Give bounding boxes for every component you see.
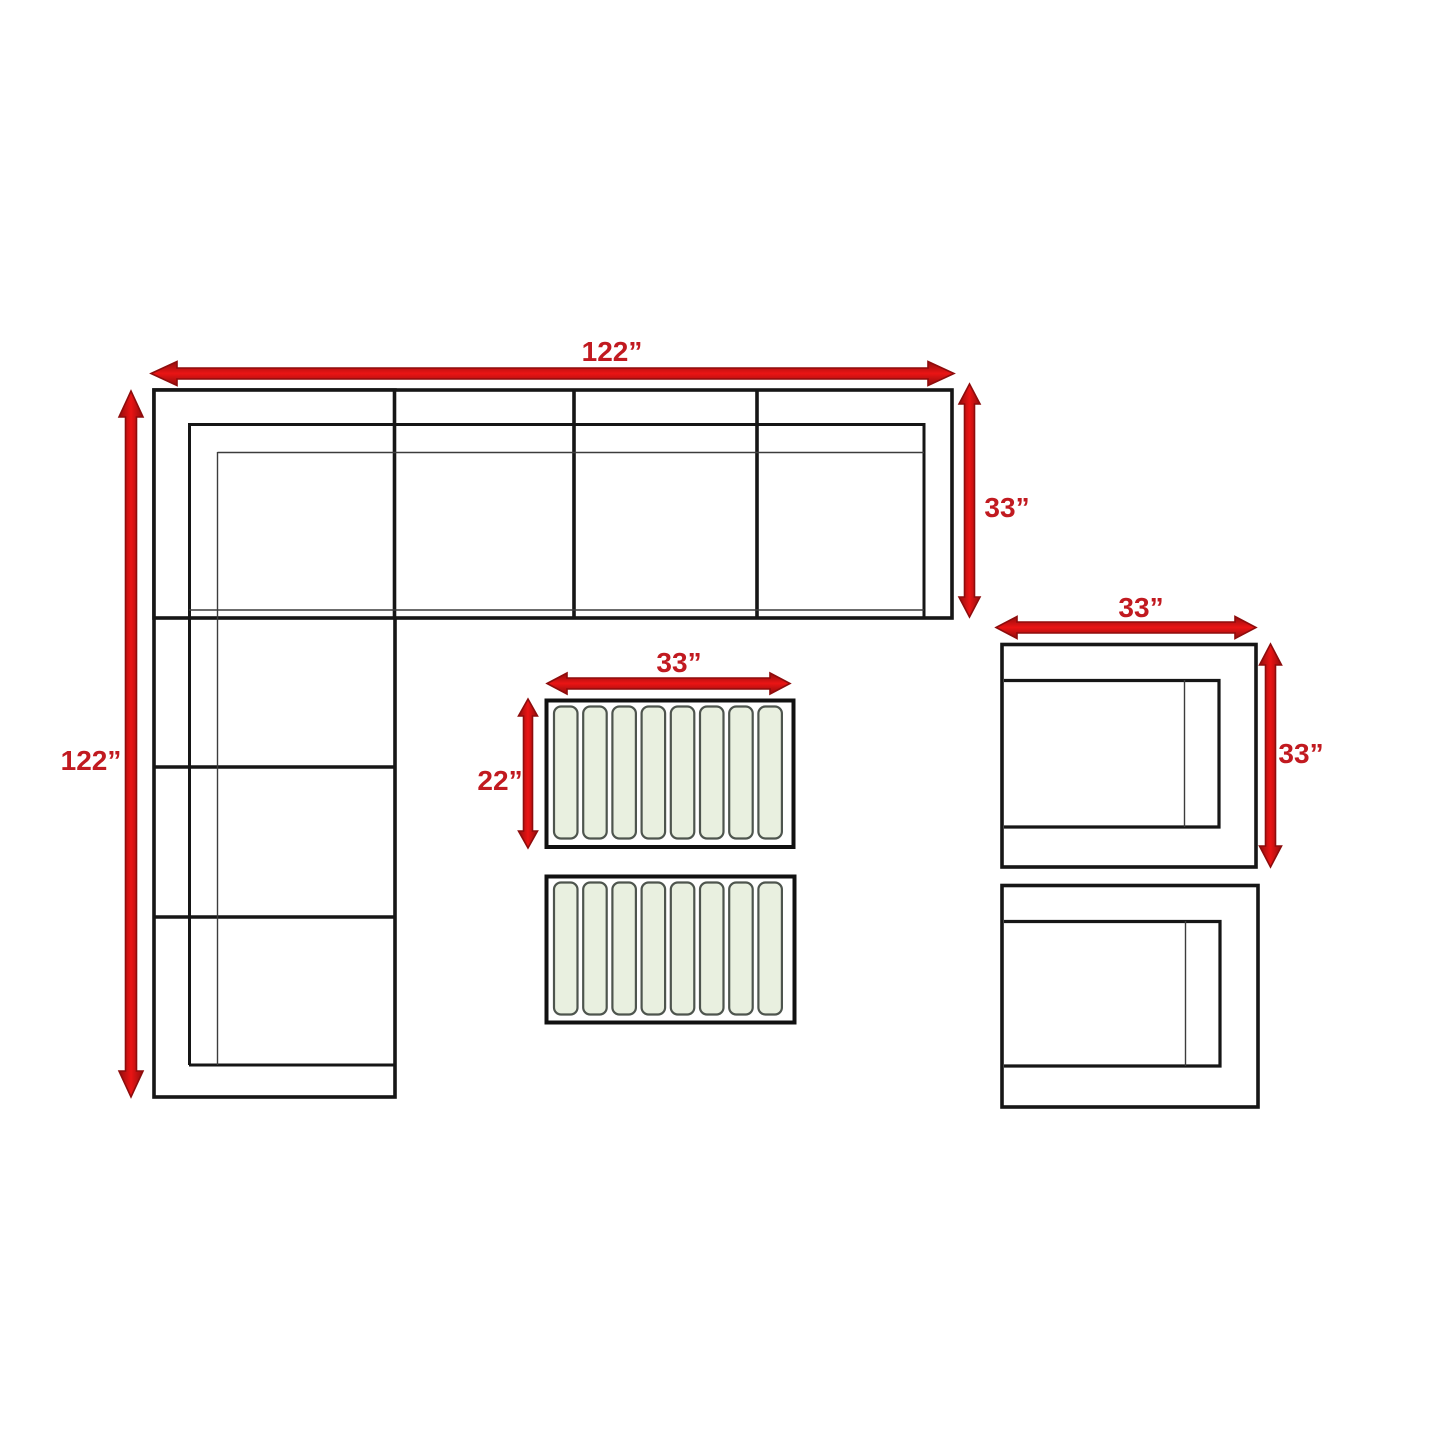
svg-text:33”: 33”	[984, 492, 1029, 523]
svg-text:122”: 122”	[61, 745, 122, 776]
svg-text:33”: 33”	[1118, 592, 1163, 623]
svg-text:122”: 122”	[582, 336, 643, 367]
svg-text:33”: 33”	[656, 647, 701, 678]
svg-text:33”: 33”	[1278, 738, 1323, 769]
svg-text:22”: 22”	[477, 765, 522, 796]
